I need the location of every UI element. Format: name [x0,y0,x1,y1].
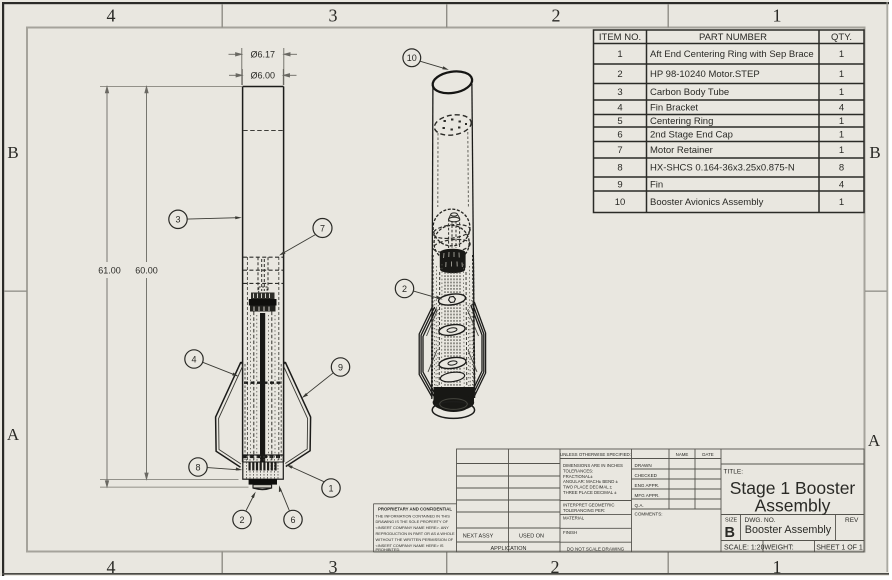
svg-text:Booster Assembly: Booster Assembly [745,524,832,536]
svg-text:5: 5 [617,116,622,127]
svg-text:8: 8 [617,163,622,174]
svg-text:Fin: Fin [650,180,663,191]
svg-text:1: 1 [839,116,844,127]
svg-text:3: 3 [329,557,338,577]
svg-text:1: 1 [839,69,844,80]
svg-text:USED ON: USED ON [519,534,544,540]
svg-text:1: 1 [839,130,844,141]
svg-text:7: 7 [617,145,622,156]
svg-text:HX-SHCS 0.164-36x3.25x0.875-N: HX-SHCS 0.164-36x3.25x0.875-N [650,163,795,174]
svg-text:4: 4 [839,180,844,191]
svg-text:61.00: 61.00 [98,266,121,276]
svg-text:3: 3 [617,87,622,98]
svg-text:Centering Ring: Centering Ring [650,116,713,127]
svg-text:4: 4 [107,6,116,26]
svg-text:7: 7 [320,223,325,233]
svg-text:TOLERANCING PER:: TOLERANCING PER: [563,508,605,513]
svg-text:B: B [869,143,880,162]
svg-text:COMMENTS:: COMMENTS: [635,512,663,517]
svg-text:1: 1 [839,87,844,98]
svg-text:1: 1 [839,197,844,208]
svg-text:Q.A.: Q.A. [635,503,644,508]
svg-text:Ø6.00: Ø6.00 [251,71,276,81]
svg-text:UNLESS OTHERWISE SPECIFIED:: UNLESS OTHERWISE SPECIFIED: [560,452,631,457]
svg-text:1: 1 [839,49,844,60]
svg-text:PROPRIETARY AND CONFIDENTIAL: PROPRIETARY AND CONFIDENTIAL [378,507,452,512]
svg-text:FINISH: FINISH [563,530,577,535]
svg-text:NEXT ASSY: NEXT ASSY [463,534,494,540]
svg-text:1: 1 [773,6,782,26]
svg-text:DO NOT SCALE DRAWING: DO NOT SCALE DRAWING [567,547,625,552]
svg-text:ITEM NO.: ITEM NO. [599,32,641,43]
svg-text:8: 8 [195,462,200,472]
svg-text:Ø6.17: Ø6.17 [251,50,276,60]
svg-text:DIMENSIONS ARE IN INCHES: DIMENSIONS ARE IN INCHES [563,463,623,468]
svg-text:MFG APPR.: MFG APPR. [635,493,660,498]
svg-text:2: 2 [551,557,560,577]
svg-text:2: 2 [552,6,561,26]
svg-text:THE INFORMATION CONTAINED IN T: THE INFORMATION CONTAINED IN THIS [376,513,451,518]
svg-text:3: 3 [329,6,338,26]
svg-text:TWO PLACE DECIMAL ±: TWO PLACE DECIMAL ± [563,485,613,490]
svg-text:Aft End Centering Ring with Se: Aft End Centering Ring with Sep Brace [650,49,814,60]
svg-text:NAME: NAME [676,452,689,457]
svg-text:1: 1 [773,557,782,577]
svg-text:4: 4 [839,103,844,114]
svg-text:6: 6 [290,515,295,525]
svg-text:2: 2 [402,284,407,294]
svg-text:ENG APPR.: ENG APPR. [635,483,660,488]
svg-text:FRACTIONAL±: FRACTIONAL± [563,474,593,479]
svg-text:HP 98-10240 Motor.STEP: HP 98-10240 Motor.STEP [650,69,760,80]
svg-text:REPRODUCTION IN PART OR AS A W: REPRODUCTION IN PART OR AS A WHOLE [376,531,456,536]
svg-text:CHECKED: CHECKED [635,473,658,478]
svg-text:<INSERT COMPANY NAME HERE>. A: <INSERT COMPANY NAME HERE>. ANY [376,525,450,530]
svg-text:ANGULAR: MACH± BEND ±: ANGULAR: MACH± BEND ± [563,479,618,484]
svg-text:1: 1 [839,145,844,156]
svg-text:INTERPRET GEOMETRIC: INTERPRET GEOMETRIC [563,503,615,508]
svg-text:PART NUMBER: PART NUMBER [699,32,767,43]
svg-text:APPLICATION: APPLICATION [491,546,527,552]
svg-text:9: 9 [338,362,343,372]
svg-text:2: 2 [617,69,622,80]
svg-text:Motor Retainer: Motor Retainer [650,145,713,156]
svg-text:WITHOUT THE WRITTEN PERMISSION: WITHOUT THE WRITTEN PERMISSION OF [376,537,454,542]
svg-text:4: 4 [107,557,116,577]
svg-text:10: 10 [407,53,417,63]
svg-text:4: 4 [191,354,196,364]
svg-text:A: A [7,425,20,444]
svg-text:DWG. NO.: DWG. NO. [745,517,776,524]
svg-text:4: 4 [617,103,622,114]
svg-text:60.00: 60.00 [135,266,158,276]
svg-text:Booster Avionics Assembly: Booster Avionics Assembly [650,197,764,208]
svg-text:PROHIBITED.: PROHIBITED. [376,547,401,552]
svg-text:9: 9 [617,180,622,191]
svg-text:1: 1 [328,483,333,493]
svg-text:TITLE:: TITLE: [724,469,744,476]
svg-text:Carbon Body Tube: Carbon Body Tube [650,87,729,98]
svg-text:3: 3 [175,215,180,225]
svg-text:SHEET 1 OF 1: SHEET 1 OF 1 [816,545,863,552]
svg-text:B: B [7,143,18,162]
svg-text:THREE PLACE DECIMAL ±: THREE PLACE DECIMAL ± [563,490,617,495]
svg-text:6: 6 [617,130,622,141]
svg-text:QTY.: QTY. [831,32,852,43]
svg-text:8: 8 [839,163,844,174]
svg-text:B: B [725,525,735,541]
svg-text:DRAWN: DRAWN [635,463,652,468]
svg-text:A: A [868,431,881,450]
svg-text:2: 2 [239,515,244,525]
svg-text:WEIGHT:: WEIGHT: [765,545,794,552]
svg-text:MATERIAL: MATERIAL [563,516,585,521]
svg-text:DRAWING IS THE SOLE PROPERTY O: DRAWING IS THE SOLE PROPERTY OF [376,519,449,524]
svg-text:2nd Stage End Cap: 2nd Stage End Cap [650,130,733,141]
svg-text:1: 1 [617,49,622,60]
svg-text:Fin Bracket: Fin Bracket [650,103,698,114]
svg-text:10: 10 [615,197,626,208]
svg-text:Assembly: Assembly [755,496,831,516]
svg-text:SIZE: SIZE [725,518,738,524]
svg-text:REV: REV [845,517,859,524]
svg-text:TOLERANCES:: TOLERANCES: [563,468,593,473]
svg-text:DATE: DATE [702,452,713,457]
svg-text:SCALE: 1:20: SCALE: 1:20 [724,545,765,552]
